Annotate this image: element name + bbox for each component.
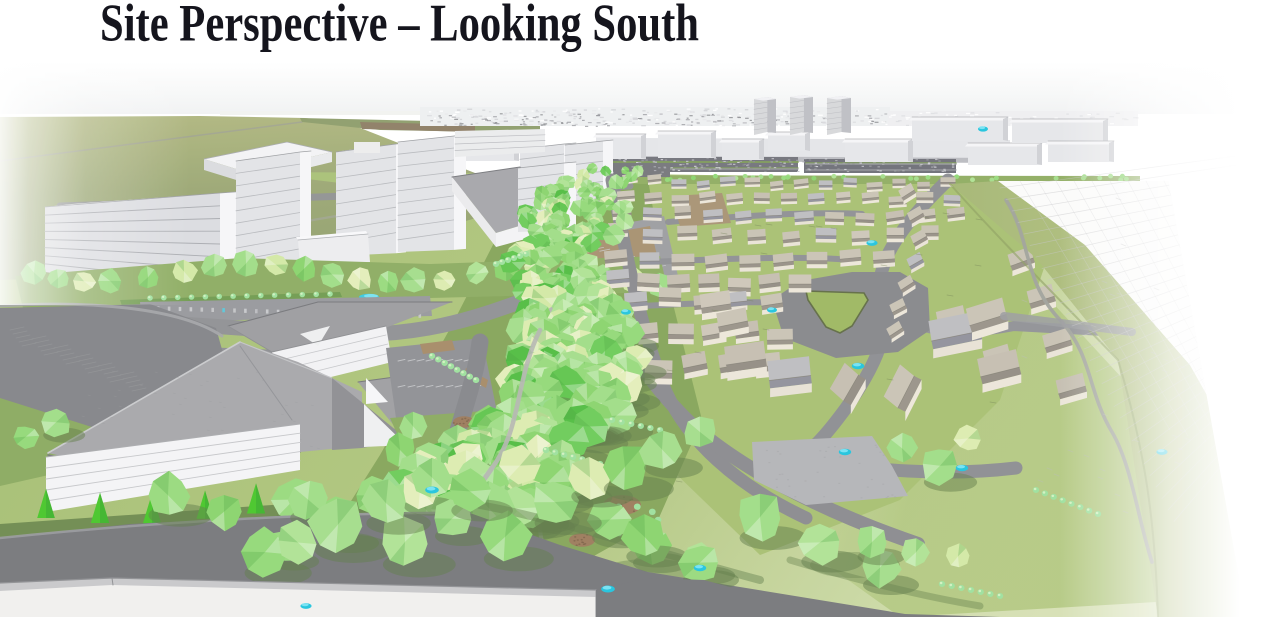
svg-text:Site Perspective – Looking Sou: Site Perspective – Looking South <box>100 0 699 53</box>
